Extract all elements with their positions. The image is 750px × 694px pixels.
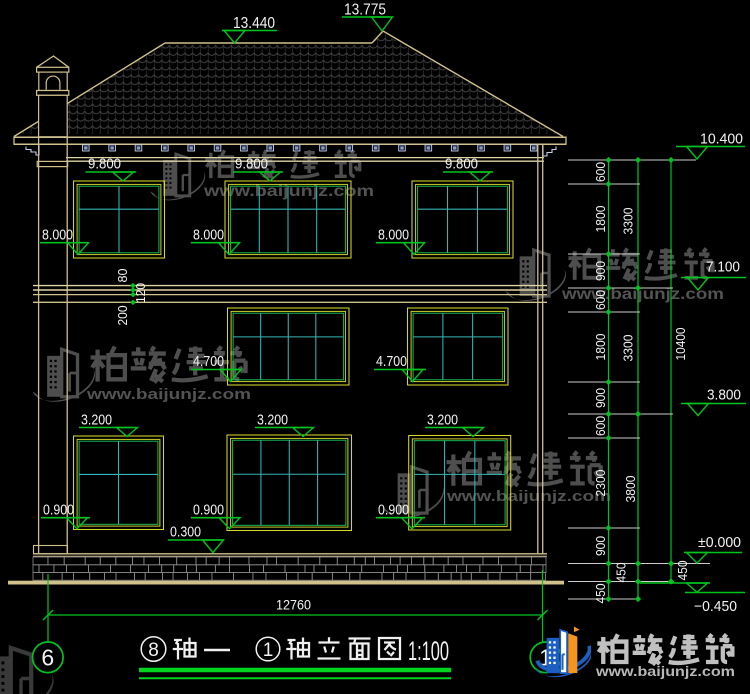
- svg-text:10400: 10400: [674, 327, 688, 360]
- svg-text:3.200: 3.200: [427, 413, 458, 429]
- svg-text:900: 900: [594, 261, 608, 281]
- svg-text:8.000: 8.000: [42, 228, 73, 244]
- svg-text:3800: 3800: [624, 475, 638, 502]
- svg-text:10.400: 10.400: [700, 132, 743, 148]
- svg-text:3300: 3300: [621, 207, 635, 234]
- svg-text:www.baijunjz.com: www.baijunjz.com: [595, 663, 735, 679]
- svg-text:600: 600: [594, 162, 608, 182]
- svg-text:3300: 3300: [621, 334, 635, 361]
- svg-text:200: 200: [116, 305, 130, 325]
- svg-text:3.800: 3.800: [707, 388, 741, 404]
- svg-text:1:100: 1:100: [408, 636, 449, 666]
- svg-text:900: 900: [594, 536, 608, 556]
- svg-text:13.440: 13.440: [233, 15, 275, 32]
- svg-text:7.100: 7.100: [706, 260, 740, 276]
- svg-text:120: 120: [134, 283, 148, 303]
- svg-text:450: 450: [614, 562, 628, 582]
- svg-text:1800: 1800: [594, 333, 608, 360]
- svg-text:3.200: 3.200: [81, 413, 112, 429]
- svg-text:80: 80: [116, 268, 130, 282]
- svg-text:450: 450: [676, 560, 690, 580]
- svg-text:1800: 1800: [594, 205, 608, 232]
- svg-text:www.baijunjz.com: www.baijunjz.com: [86, 386, 251, 403]
- svg-text:8: 8: [148, 640, 159, 661]
- svg-text:9.800: 9.800: [235, 157, 268, 173]
- svg-text:0.300: 0.300: [170, 525, 201, 541]
- svg-text:4.700: 4.700: [193, 354, 224, 370]
- svg-text:4.700: 4.700: [376, 354, 407, 370]
- svg-text:3.200: 3.200: [257, 413, 288, 429]
- svg-text:2300: 2300: [594, 469, 608, 496]
- svg-text:12760: 12760: [276, 598, 311, 613]
- svg-text:450: 450: [594, 583, 608, 603]
- svg-text:0.900: 0.900: [193, 503, 224, 519]
- svg-text:−0.450: −0.450: [694, 599, 737, 615]
- svg-text:600: 600: [594, 416, 608, 436]
- svg-text:13.775: 13.775: [344, 2, 386, 19]
- svg-text:9.800: 9.800: [88, 157, 121, 173]
- svg-text:600: 600: [594, 290, 608, 310]
- svg-text:www.baijunjz.com: www.baijunjz.com: [446, 488, 611, 505]
- svg-text:900: 900: [594, 388, 608, 408]
- svg-text:8.000: 8.000: [193, 228, 224, 244]
- svg-text:0.900: 0.900: [43, 503, 74, 519]
- svg-text:9.800: 9.800: [445, 157, 478, 173]
- svg-text:0.900: 0.900: [378, 503, 409, 519]
- svg-text:8.000: 8.000: [378, 228, 409, 244]
- svg-text:1: 1: [263, 640, 274, 661]
- svg-text:6: 6: [41, 645, 54, 671]
- svg-text:±0.000: ±0.000: [698, 535, 741, 551]
